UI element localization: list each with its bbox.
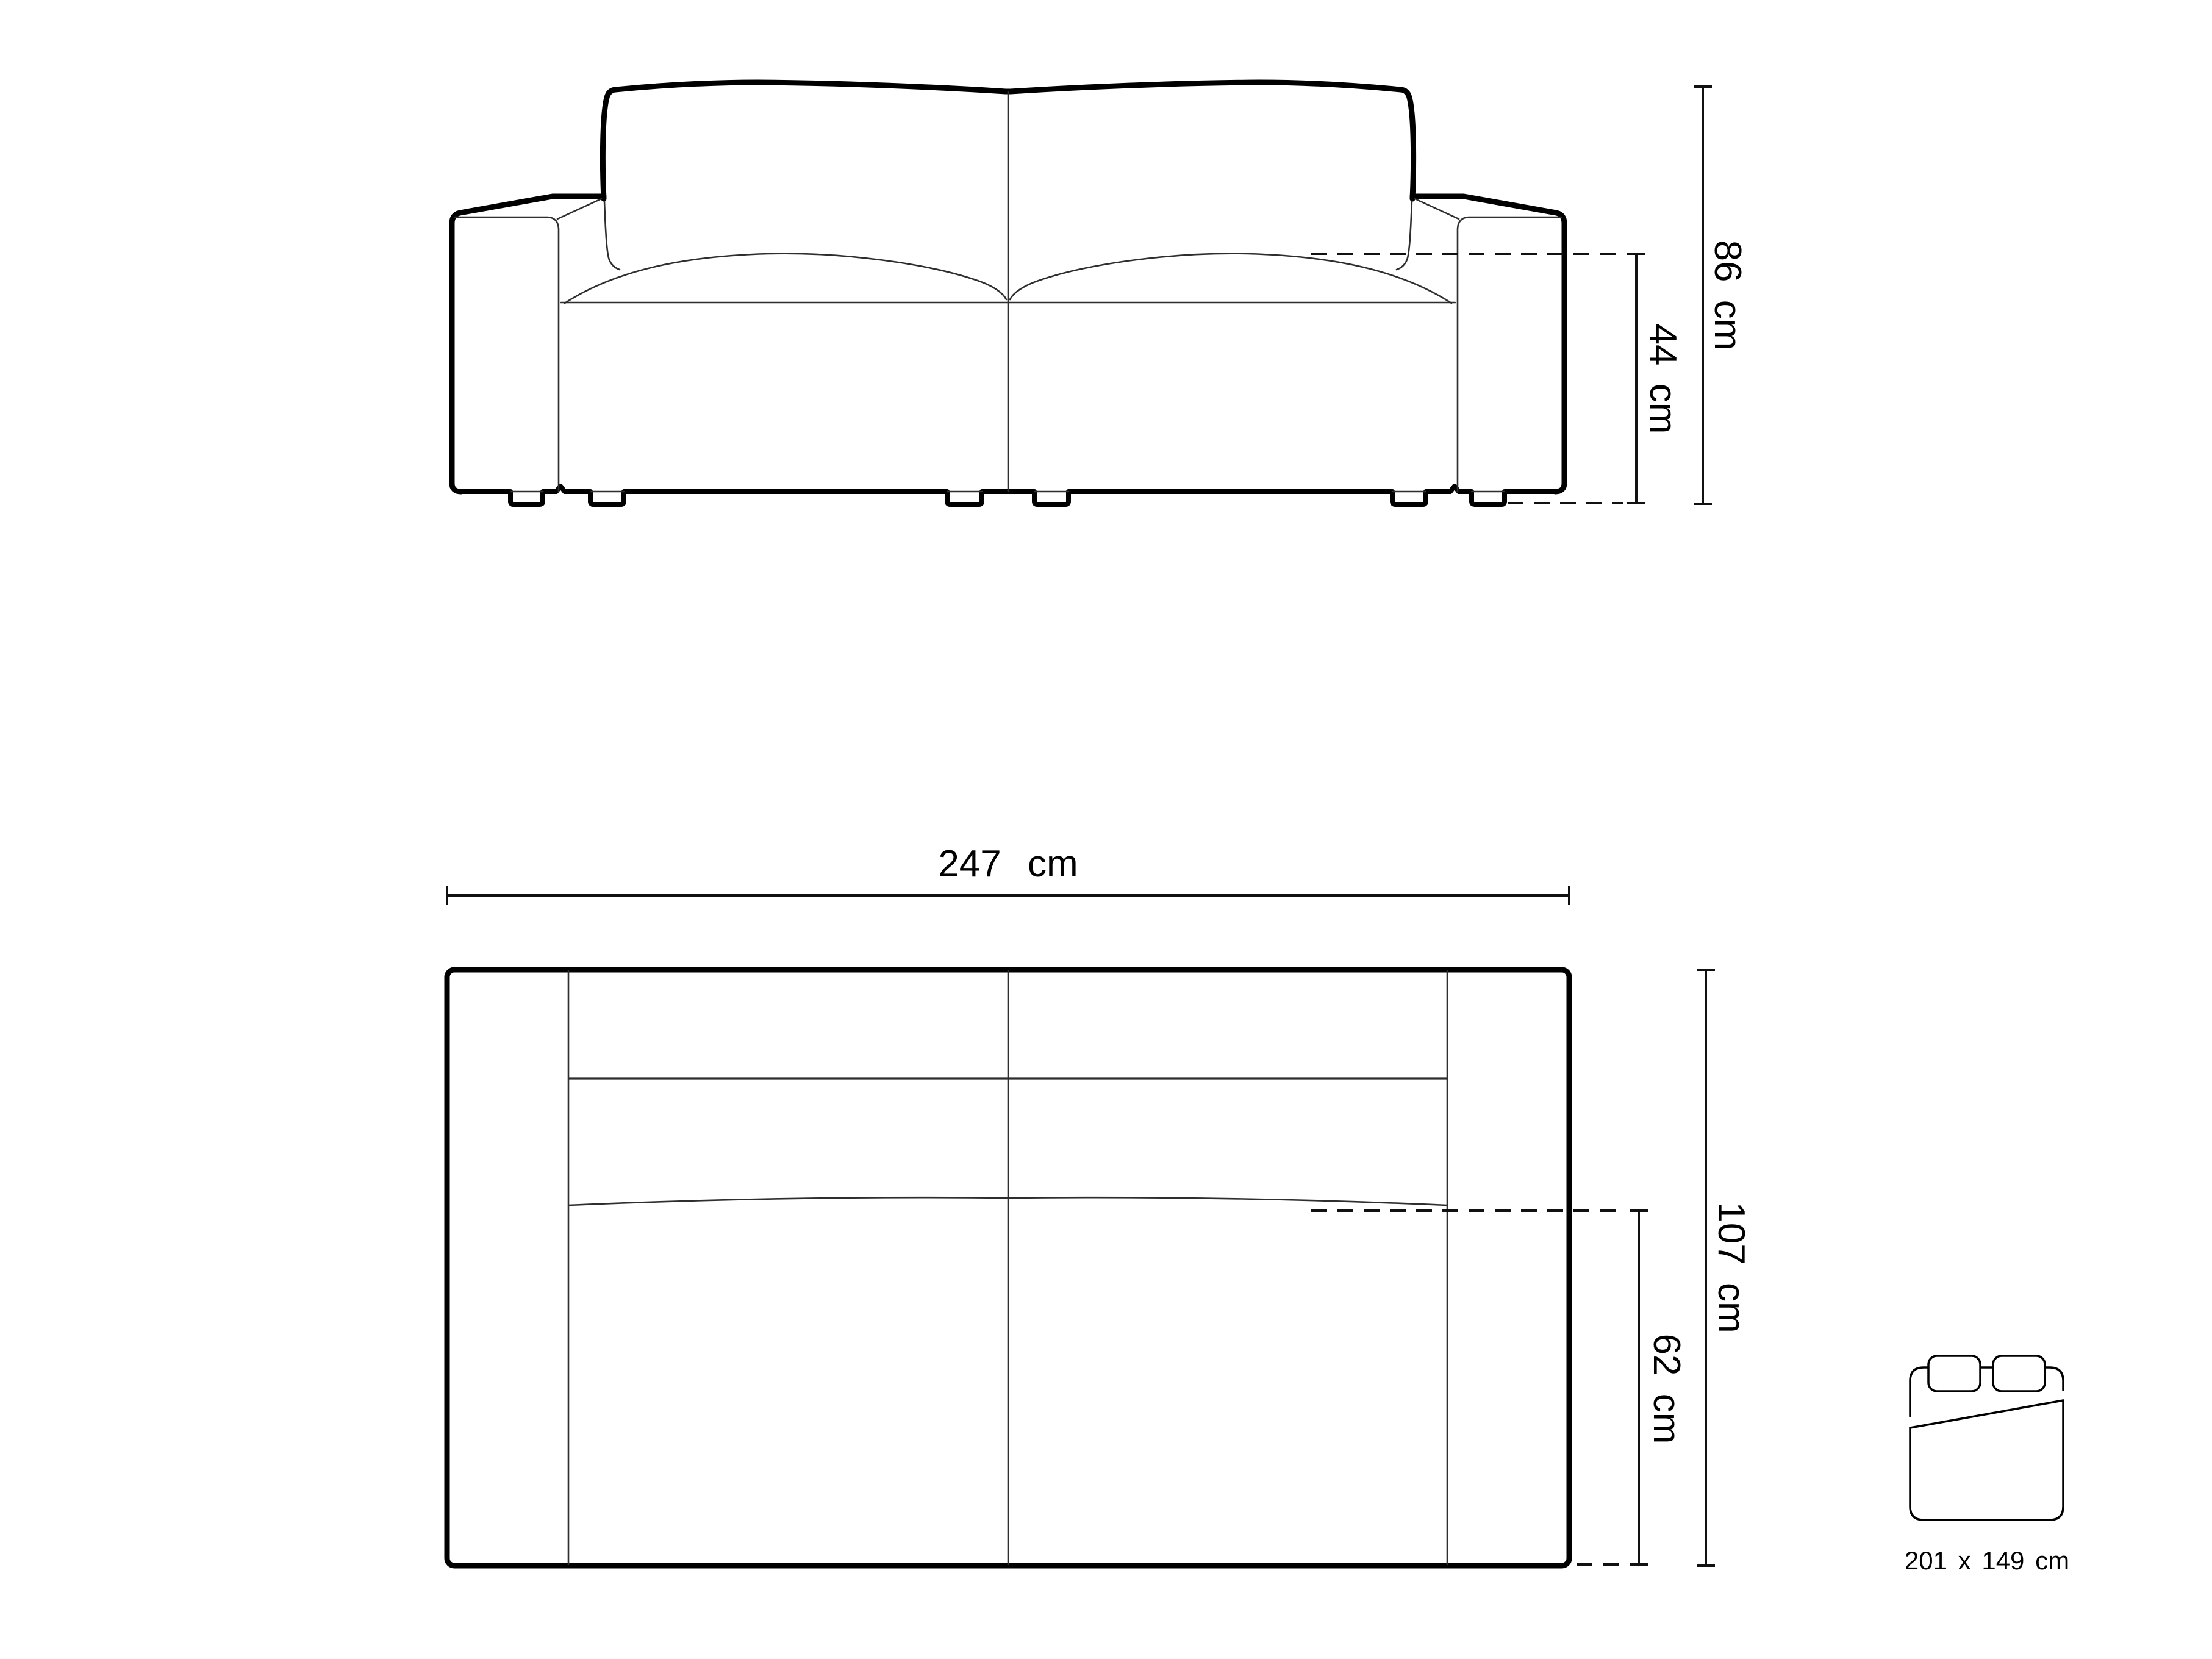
total-depth-label: 107 cm (1710, 1202, 1752, 1333)
front-view (452, 82, 1564, 504)
top-view (447, 970, 1569, 1566)
top-view-dimensions: 247 cm 107 cm 62 cm (447, 843, 1752, 1566)
left-seat-cushion-curve (565, 254, 1006, 303)
total-height-label: 86 cm (1706, 240, 1748, 351)
left-armrest-front-face (455, 217, 559, 492)
backrest-left-inner-edge (604, 201, 620, 270)
top-view-left-seat-front-curve (568, 1197, 1007, 1205)
top-view-right-seat-front-curve (1009, 1197, 1447, 1205)
bed-pillow-right-icon (1993, 1356, 2045, 1391)
backrest-right-inner-edge (1397, 201, 1412, 270)
sleeping-area-label: 201 x 149 cm (1905, 1546, 2069, 1575)
seat-height-label: 44 cm (1642, 324, 1684, 434)
total-width-dimension-line (447, 886, 1569, 905)
right-armrest-outline (1412, 196, 1564, 492)
sleeping-area-icon: 201 x 149 cm (1905, 1356, 2069, 1575)
seat-depth-dimension-line (1630, 1211, 1648, 1564)
right-armrest-top-edge (1415, 199, 1459, 219)
right-seat-cushion-curve (1010, 254, 1451, 303)
left-armrest-outline (452, 196, 604, 492)
sofa-dimension-drawing: 86 cm 44 cm 247 cm 107 cm 62 cm 201 x 14… (0, 0, 2212, 1659)
front-view-dimensions: 86 cm 44 cm (1311, 87, 1748, 504)
bed-pillow-left-icon (1928, 1356, 1980, 1391)
bed-fold-line-icon (1910, 1400, 2063, 1428)
seat-depth-label: 62 cm (1645, 1334, 1688, 1444)
left-armrest-top-edge (557, 199, 601, 219)
total-width-label: 247 cm (938, 843, 1078, 885)
dimension-diagram: 86 cm 44 cm 247 cm 107 cm 62 cm 201 x 14… (0, 0, 2212, 1659)
right-armrest-front-face (1458, 217, 1561, 492)
